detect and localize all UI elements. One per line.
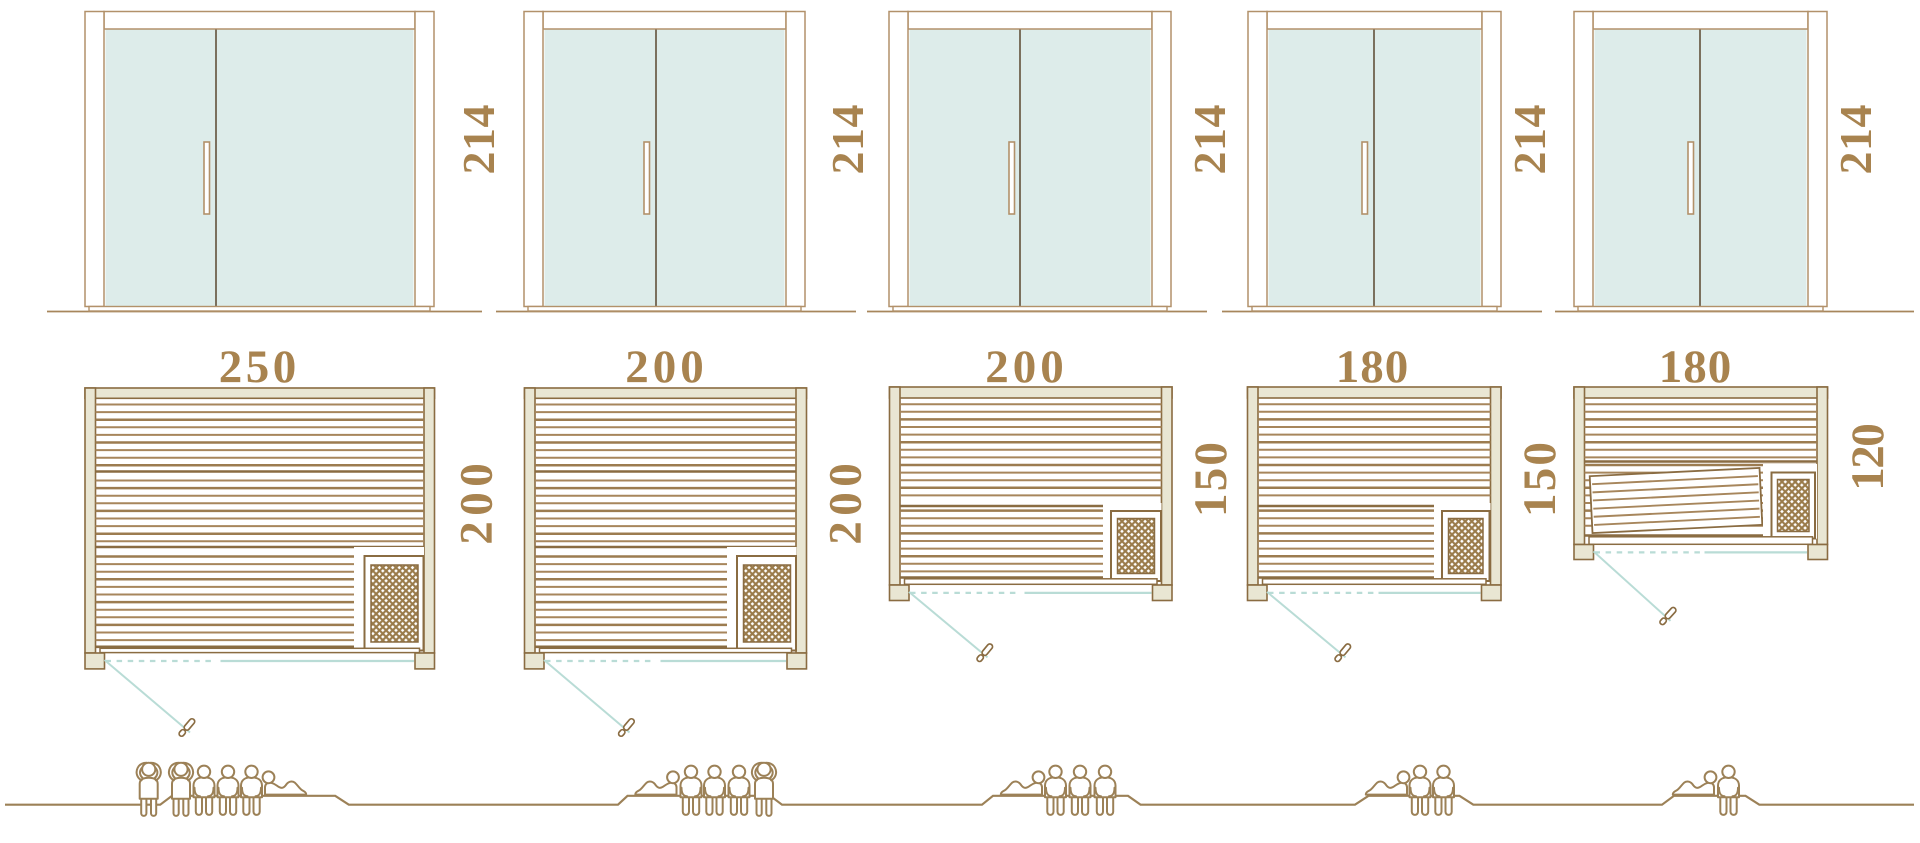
svg-text:214: 214: [822, 104, 873, 175]
svg-text:180: 180: [1336, 341, 1410, 393]
svg-text:150: 150: [1185, 440, 1237, 517]
svg-text:200: 200: [625, 341, 708, 393]
svg-text:214: 214: [1184, 104, 1235, 175]
svg-text:180: 180: [1659, 341, 1733, 393]
svg-text:200: 200: [451, 458, 503, 545]
svg-text:214: 214: [1504, 104, 1555, 175]
svg-text:200: 200: [985, 341, 1068, 393]
svg-text:150: 150: [1514, 440, 1566, 517]
svg-text:214: 214: [453, 104, 504, 175]
svg-text:200: 200: [820, 458, 872, 545]
svg-text:250: 250: [219, 341, 300, 393]
svg-text:120: 120: [1842, 425, 1894, 491]
svg-text:214: 214: [1830, 104, 1881, 175]
